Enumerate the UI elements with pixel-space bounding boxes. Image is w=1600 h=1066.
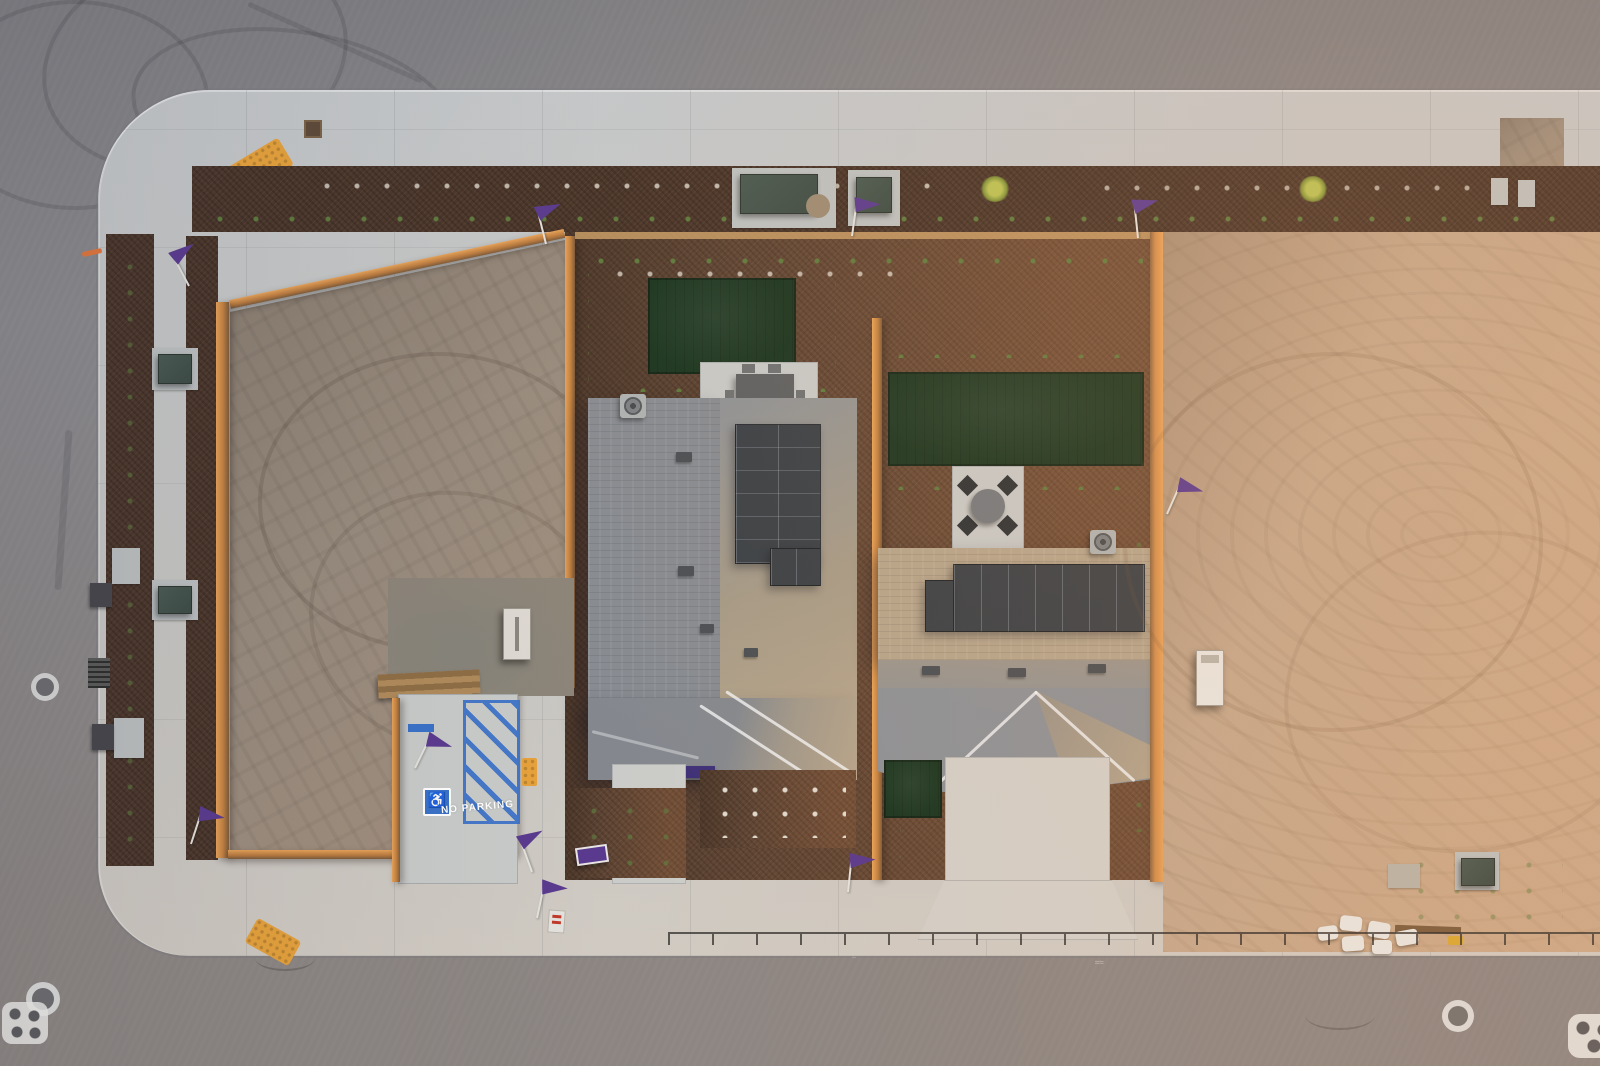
flower-cluster (710, 778, 846, 838)
driveway (945, 757, 1110, 883)
ac-unit (620, 394, 646, 418)
shrub (980, 176, 1010, 202)
roof-vent (922, 666, 940, 675)
street-railing (668, 932, 1600, 945)
shrub (1298, 176, 1328, 202)
portable-equipment-unit (503, 608, 531, 660)
plant-row (573, 262, 589, 692)
solar-panel-array (953, 564, 1145, 632)
debris-pad (1388, 864, 1420, 888)
road-chalk-mark: ≈≈ (1095, 958, 1104, 967)
paver (1518, 180, 1535, 207)
plant-row (883, 344, 1143, 358)
ac-unit (1090, 530, 1116, 554)
utility-box (1461, 858, 1495, 886)
roof-vent (744, 648, 758, 657)
driveway-apron (918, 880, 1138, 940)
roof-vent (676, 452, 692, 462)
small-sign (547, 909, 566, 933)
roof-vent (700, 624, 714, 633)
paver (1491, 178, 1508, 205)
utility-pad (112, 548, 140, 584)
wood-fence-rail (575, 232, 1152, 239)
sandbag (1339, 915, 1362, 932)
patio-chair (768, 364, 781, 373)
roof-vent (1008, 668, 1026, 677)
turf-lawn (884, 760, 942, 818)
patio-chair (742, 364, 755, 373)
solar-panel-array (735, 424, 821, 564)
roof-vent (678, 566, 694, 576)
bistro-table (971, 489, 1005, 523)
valve-cover-cluster (1568, 1014, 1600, 1058)
utility-box (158, 354, 192, 384)
bistro-chair (957, 515, 978, 536)
flower-row (605, 262, 905, 278)
stall-stripe (408, 724, 434, 732)
sidewalk-dirt-gap (1500, 118, 1564, 172)
sign-mark (552, 921, 561, 925)
turf-lawn (648, 278, 796, 374)
turf-lawn (888, 372, 1144, 466)
unit-vent (1201, 655, 1219, 663)
bistro-chair (997, 475, 1018, 496)
valve-cover-cluster (2, 1002, 48, 1044)
left-planting-strip-inner (186, 236, 218, 860)
equipment-handle (515, 617, 519, 651)
front-flower-bed (700, 770, 856, 848)
wood-fence (216, 302, 229, 858)
solar-panel-array-extension (770, 548, 821, 586)
manhole-cover (36, 678, 54, 696)
roof-vent (1088, 664, 1106, 673)
bistro-chair (957, 475, 978, 496)
aerial-construction-site-photo: 2111.09→ 450 ≈ ≈≈ (0, 0, 1600, 1066)
solar-panel-array-extension (925, 580, 954, 632)
sidewalk-utility-marker (304, 120, 322, 138)
graded-dirt-lot-right (1163, 232, 1600, 952)
curb-ramp-mark (522, 758, 537, 786)
portable-unit (1196, 650, 1224, 706)
bistro-table-set (958, 476, 1018, 536)
sign-mark (552, 915, 561, 919)
storm-drain-grate (88, 658, 110, 688)
bistro-chair (997, 515, 1018, 536)
utility-pad (114, 718, 144, 758)
curbside-box (90, 583, 112, 607)
utility-box (158, 586, 192, 614)
house1-roof-left-slope (588, 398, 720, 726)
utility-lid (806, 194, 830, 218)
chalk-mark (1305, 1000, 1375, 1030)
curbside-box (92, 724, 114, 750)
flower-row (312, 174, 932, 194)
wood-fence (392, 698, 400, 882)
manhole-cover (1448, 1006, 1468, 1026)
